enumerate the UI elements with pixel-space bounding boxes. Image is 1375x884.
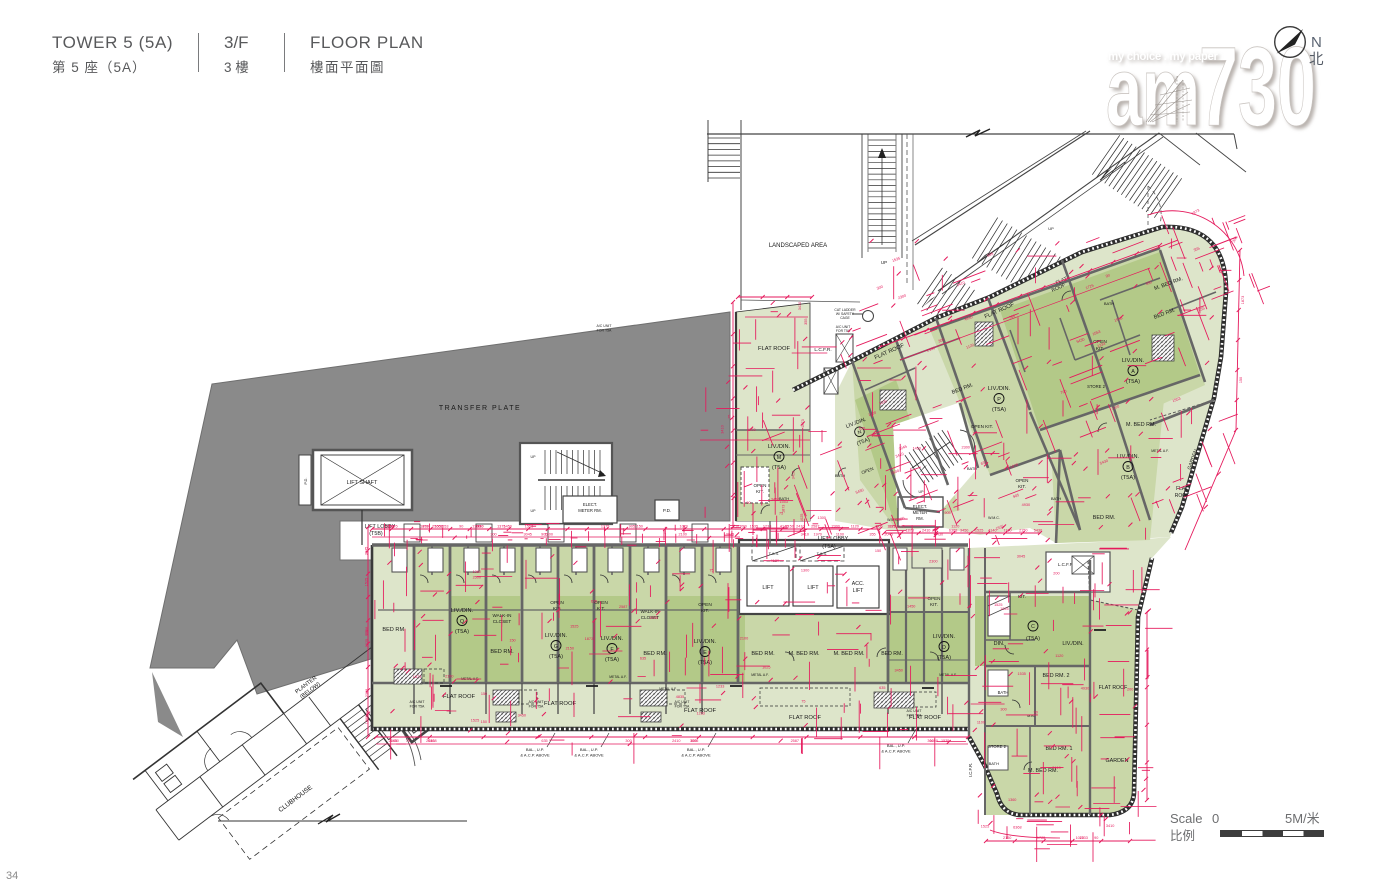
svg-text:5M/米: 5M/米 bbox=[1285, 811, 1320, 826]
svg-text:0: 0 bbox=[1212, 811, 1219, 826]
svg-text:北: 北 bbox=[1309, 51, 1324, 68]
svg-text:比例: 比例 bbox=[1170, 829, 1195, 843]
svg-text:730: 730 bbox=[1199, 24, 1316, 149]
svg-text:N: N bbox=[1311, 34, 1322, 51]
svg-text:Scale: Scale bbox=[1170, 811, 1203, 826]
svg-text:my choice . my paper: my choice . my paper bbox=[1108, 51, 1219, 63]
